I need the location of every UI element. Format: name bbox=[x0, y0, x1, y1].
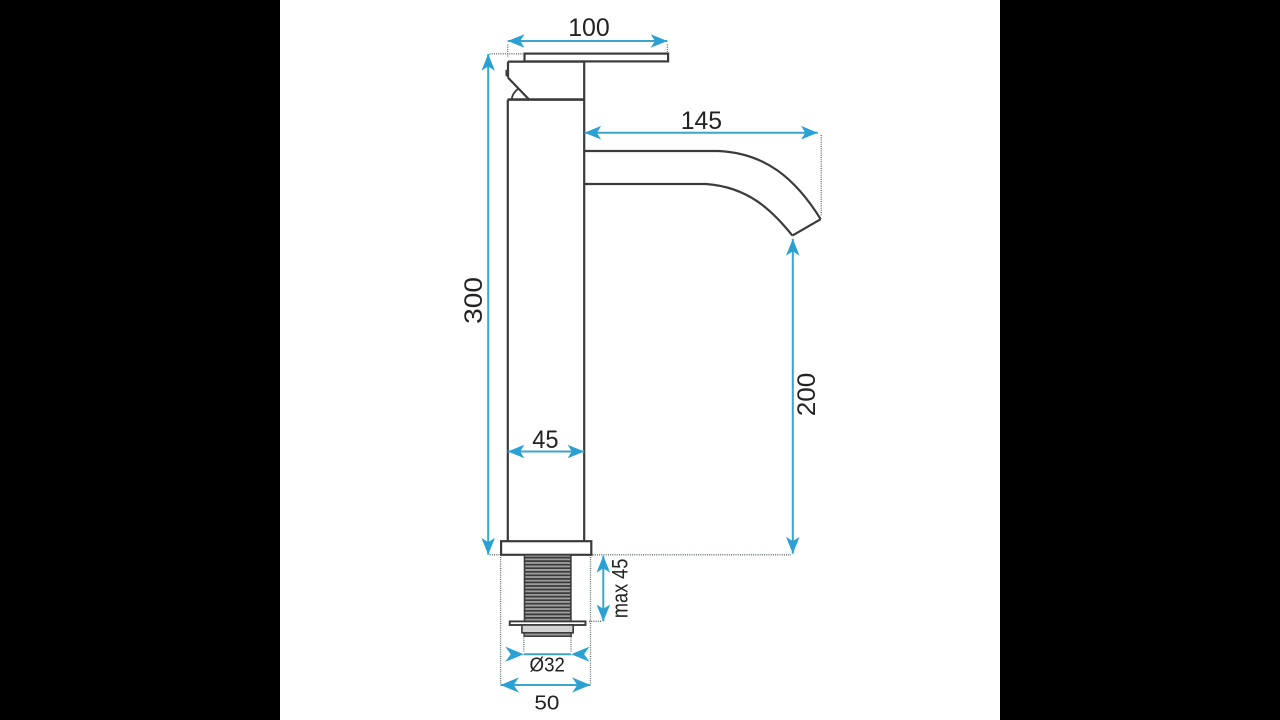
svg-text:100: 100 bbox=[568, 14, 610, 42]
svg-text:50: 50 bbox=[534, 693, 559, 715]
svg-text:Ø32: Ø32 bbox=[530, 655, 565, 677]
svg-text:max 45: max 45 bbox=[607, 559, 632, 618]
svg-text:45: 45 bbox=[532, 426, 558, 454]
svg-text:145: 145 bbox=[681, 107, 722, 135]
svg-text:200: 200 bbox=[793, 373, 821, 417]
svg-text:300: 300 bbox=[460, 277, 488, 324]
